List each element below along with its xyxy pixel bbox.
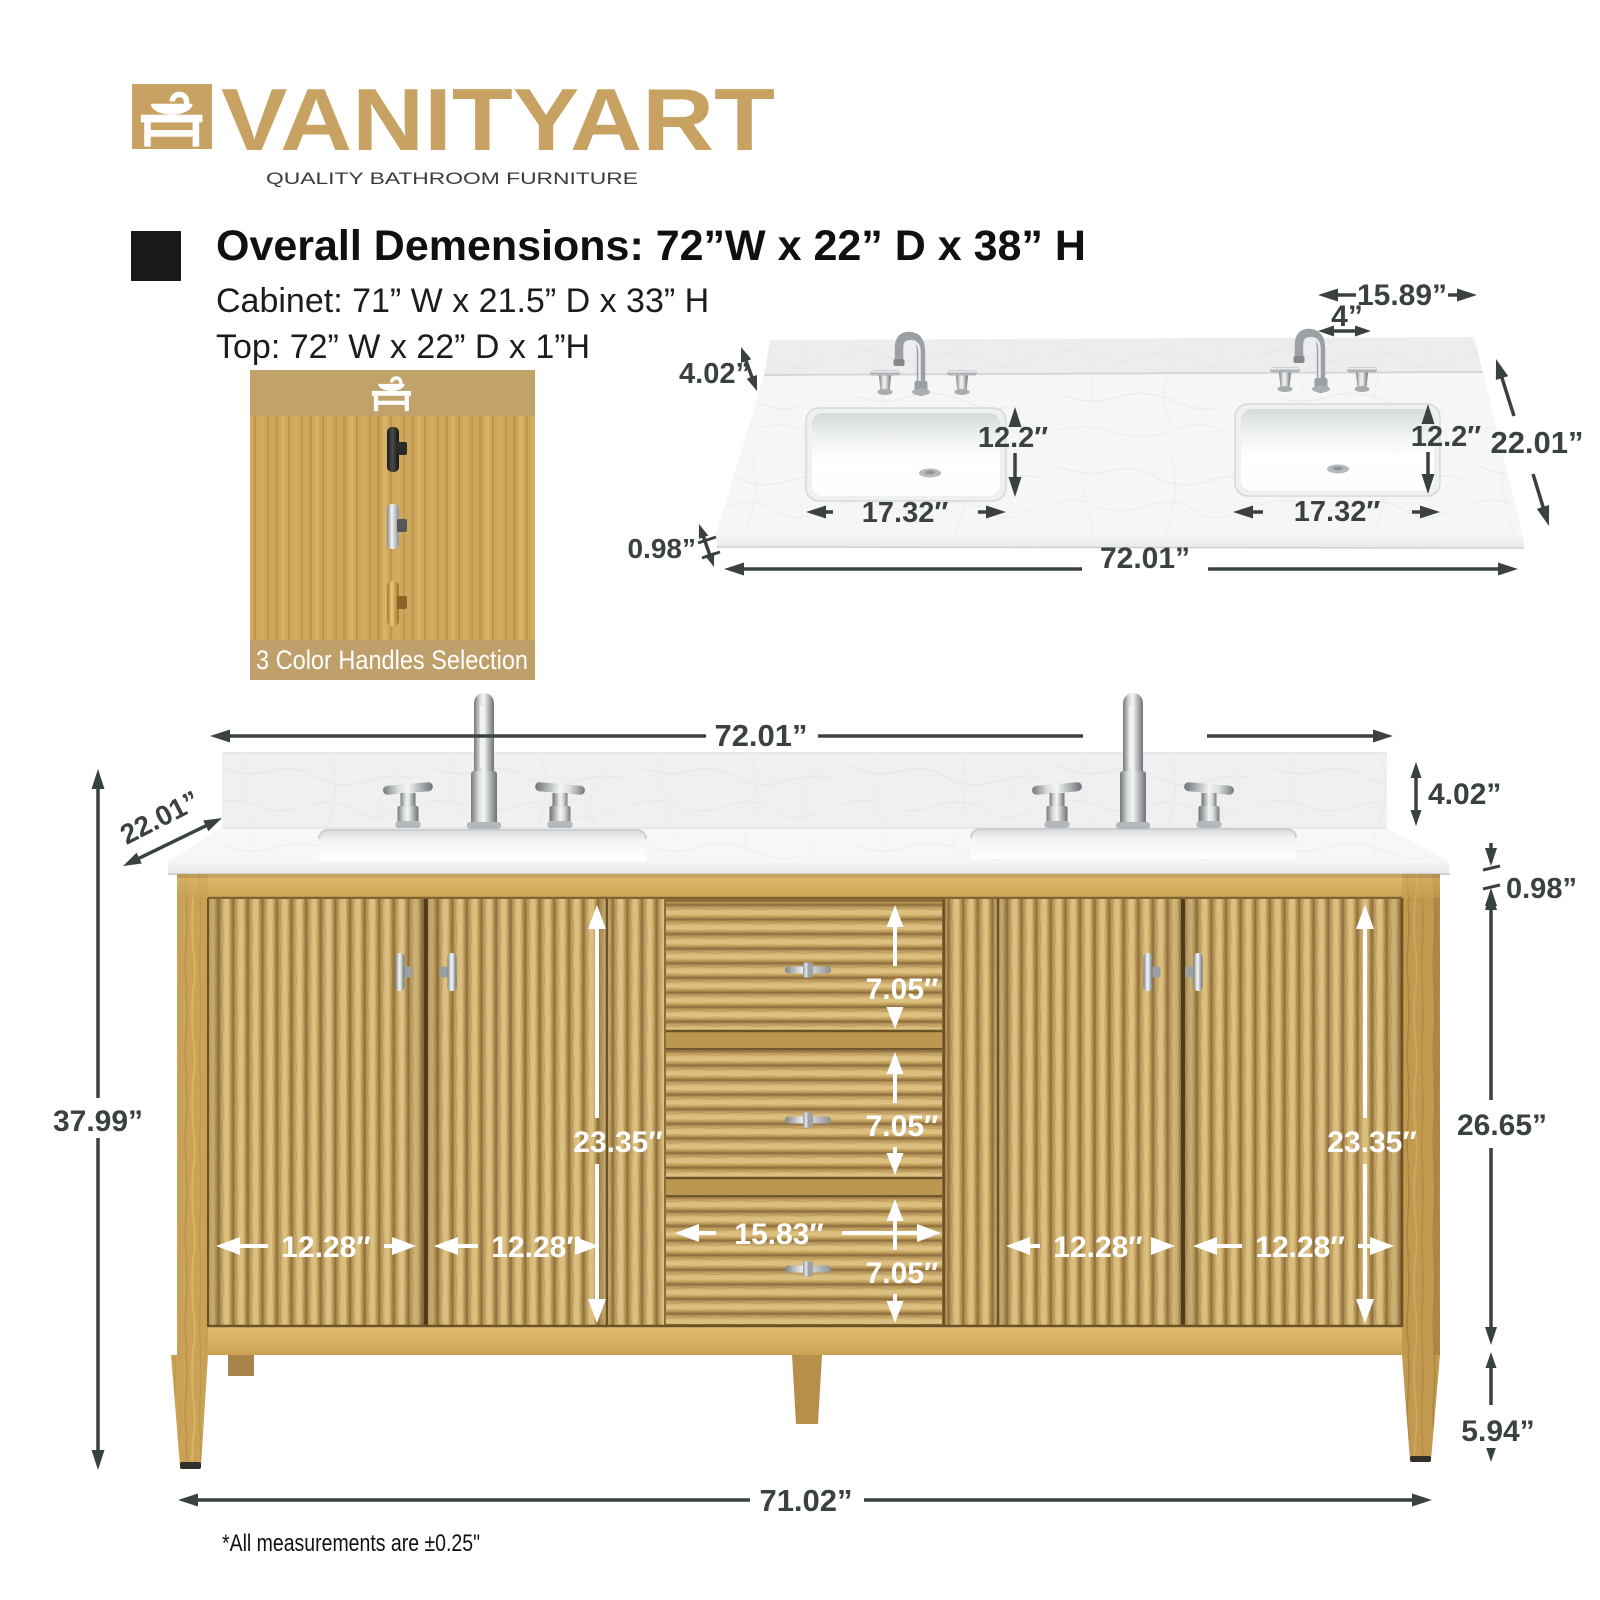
- svg-text:72.01”: 72.01”: [714, 718, 807, 753]
- svg-text:12.28″: 12.28″: [1053, 1231, 1142, 1264]
- svg-text:3 Color Handles Selection: 3 Color Handles Selection: [256, 645, 528, 675]
- svg-text:4.02”: 4.02”: [679, 358, 750, 390]
- svg-text:12.28″: 12.28″: [281, 1231, 370, 1264]
- svg-text:12.2″: 12.2″: [1411, 421, 1481, 453]
- svg-text:4.02”: 4.02”: [1428, 778, 1501, 811]
- svg-text:15.89”: 15.89”: [1357, 279, 1447, 312]
- svg-text:0.98”: 0.98”: [628, 533, 697, 564]
- svg-text:22.01”: 22.01”: [115, 785, 204, 851]
- svg-text:26.65”: 26.65”: [1457, 1109, 1547, 1142]
- svg-text:22.01”: 22.01”: [1490, 425, 1583, 460]
- svg-text:7.05″: 7.05″: [866, 973, 939, 1006]
- svg-text:5.94”: 5.94”: [1461, 1415, 1534, 1448]
- svg-text:QUALITY BATHROOM FURNITURE: QUALITY BATHROOM FURNITURE: [266, 169, 638, 188]
- svg-text:72.01”: 72.01”: [1100, 542, 1190, 575]
- svg-text:17.32″: 17.32″: [862, 497, 949, 529]
- svg-text:0.98”: 0.98”: [1506, 873, 1577, 905]
- svg-text:71.02”: 71.02”: [759, 1483, 852, 1518]
- svg-text:*All measurements are ±0.25": *All measurements are ±0.25": [222, 1530, 480, 1557]
- svg-text:37.99”: 37.99”: [53, 1105, 143, 1138]
- svg-text:12.2″: 12.2″: [978, 422, 1048, 454]
- svg-text:12.28″: 12.28″: [1255, 1231, 1344, 1264]
- svg-text:23.35″: 23.35″: [573, 1126, 662, 1159]
- svg-text:Cabinet: 71” W x 21.5” D x 33”: Cabinet: 71” W x 21.5” D x 33” H: [216, 282, 709, 320]
- svg-text:Top: 72” W x 22” D x 1”H: Top: 72” W x 22” D x 1”H: [216, 328, 590, 366]
- svg-text:VANITYART: VANITYART: [221, 70, 775, 169]
- svg-text:Overall Demensions: 72”W x 22”: Overall Demensions: 72”W x 22” D x 38” H: [216, 222, 1086, 270]
- svg-text:7.05″: 7.05″: [866, 1257, 939, 1290]
- svg-text:15.83″: 15.83″: [734, 1218, 823, 1251]
- svg-text:23.35″: 23.35″: [1327, 1126, 1416, 1159]
- svg-text:12.28″: 12.28″: [491, 1231, 580, 1264]
- svg-text:7.05″: 7.05″: [866, 1110, 939, 1143]
- svg-text:17.32″: 17.32″: [1294, 496, 1381, 528]
